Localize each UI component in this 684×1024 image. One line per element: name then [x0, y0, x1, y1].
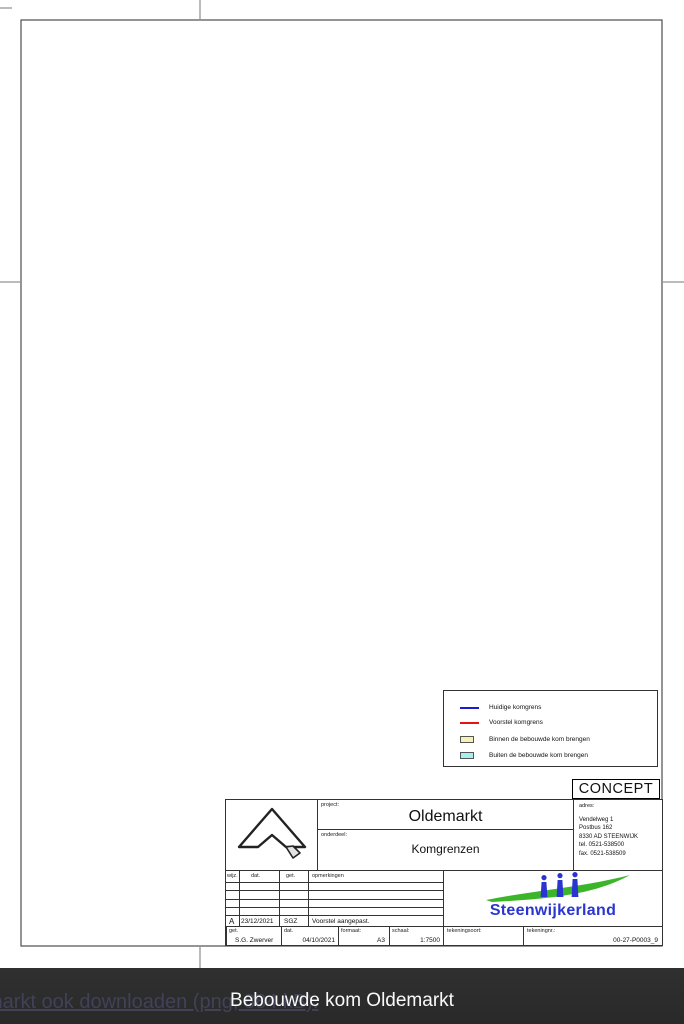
rev-wijz: A: [229, 917, 234, 926]
legend-swatch-huidige-komgrens: [460, 707, 479, 709]
tekeningnr-label: tekeningnr.:: [527, 928, 555, 934]
get-value: S.G. Zwerver: [235, 937, 273, 944]
tekeningsoort-label: tekeningsoort:: [447, 928, 482, 934]
footer-tekeningnr-cell: tekeningnr.: 00-27-P0003_9: [523, 926, 662, 945]
address-line: tel. 0521-538500: [579, 841, 662, 850]
legend-label: Buiten de bebouwde kom brengen: [489, 752, 588, 759]
formaat-value: A3: [377, 937, 385, 944]
title-block: project: Oldemarkt onderdeel: Komgrenzen…: [225, 799, 663, 946]
col-dat: dat.: [251, 873, 260, 879]
map-legend: Huidige komgrens Voorstel komgrens Binne…: [443, 690, 658, 767]
legend-item: Binnen de bebouwde kom brengen: [460, 732, 657, 747]
logo-figures-icon: [444, 871, 663, 903]
adres-label: adres:: [579, 802, 662, 811]
steenwijkerland-logo: Steenwijkerland: [443, 870, 662, 926]
legend-label: Binnen de bebouwde kom brengen: [489, 736, 590, 743]
address-cell: adres: Vendelweg 1 Postbus 162 8330 AD S…: [574, 800, 662, 870]
dat-label: dat.: [284, 928, 293, 934]
footer-formaat-cell: formaat: A3: [338, 926, 389, 945]
col-opmerkingen: opmerkingen: [312, 873, 344, 879]
revision-table: wijz. dat. get. opmerkingen A 23/12/2021…: [226, 870, 443, 926]
north-arrow-icon: [226, 800, 318, 870]
rev-opmerkingen: Voorstel aangepast.: [312, 918, 369, 925]
lightbox-caption-bar: markt ook downloaden (png, 884 kB). Bebo…: [0, 968, 684, 1024]
schaal-value: 1:7500: [420, 937, 440, 944]
col-get: get.: [286, 873, 295, 879]
footer-dat-cell: dat. 04/10/2021: [281, 926, 338, 945]
lightbox-view: Huidige komgrens Voorstel komgrens Binne…: [0, 0, 684, 1024]
north-arrow-cell: [226, 800, 318, 870]
legend-item: Buiten de bebouwde kom brengen: [460, 748, 657, 763]
legend-label: Huidige komgrens: [489, 704, 541, 711]
tekeningnr-value: 00-27-P0003_9: [613, 937, 658, 944]
legend-swatch-buiten: [460, 752, 474, 759]
dat-value: 04/10/2021: [302, 937, 335, 944]
project-cell: project: Oldemarkt: [318, 800, 574, 830]
address-line: Vendelweg 1: [579, 816, 662, 825]
rev-get: SGZ: [284, 918, 297, 925]
address-line: 8330 AD STEENWIJK: [579, 833, 662, 842]
onderdeel-title: Komgrenzen: [318, 842, 573, 856]
image-caption: Bebouwde kom Oldemarkt: [0, 990, 684, 1012]
footer-schaal-cell: schaal: 1:7500: [389, 926, 443, 945]
legend-item: Huidige komgrens: [460, 700, 657, 715]
footer-tekeningsoort-cell: tekeningsoort:: [443, 926, 523, 945]
legend-item: Voorstel komgrens: [460, 715, 657, 730]
onderdeel-cell: onderdeel: Komgrenzen: [318, 830, 574, 870]
col-wijz: wijz.: [227, 873, 238, 879]
concept-stamp: CONCEPT: [572, 779, 660, 799]
logo-text: Steenwijkerland: [444, 902, 662, 920]
project-title: Oldemarkt: [318, 808, 573, 826]
address-line: fax. 0521-538509: [579, 850, 662, 859]
footer-get-cell: get. S.G. Zwerver: [226, 926, 281, 945]
onderdeel-label: onderdeel:: [321, 832, 347, 838]
legend-label: Voorstel komgrens: [489, 719, 543, 726]
schaal-label: schaal:: [392, 928, 409, 934]
formaat-label: formaat:: [341, 928, 361, 934]
legend-swatch-voorstel-komgrens: [460, 722, 479, 724]
address-line: Postbus 162: [579, 824, 662, 833]
get-label: get.: [229, 928, 238, 934]
legend-swatch-binnen: [460, 736, 474, 743]
rev-dat: 23/12/2021: [241, 918, 274, 925]
